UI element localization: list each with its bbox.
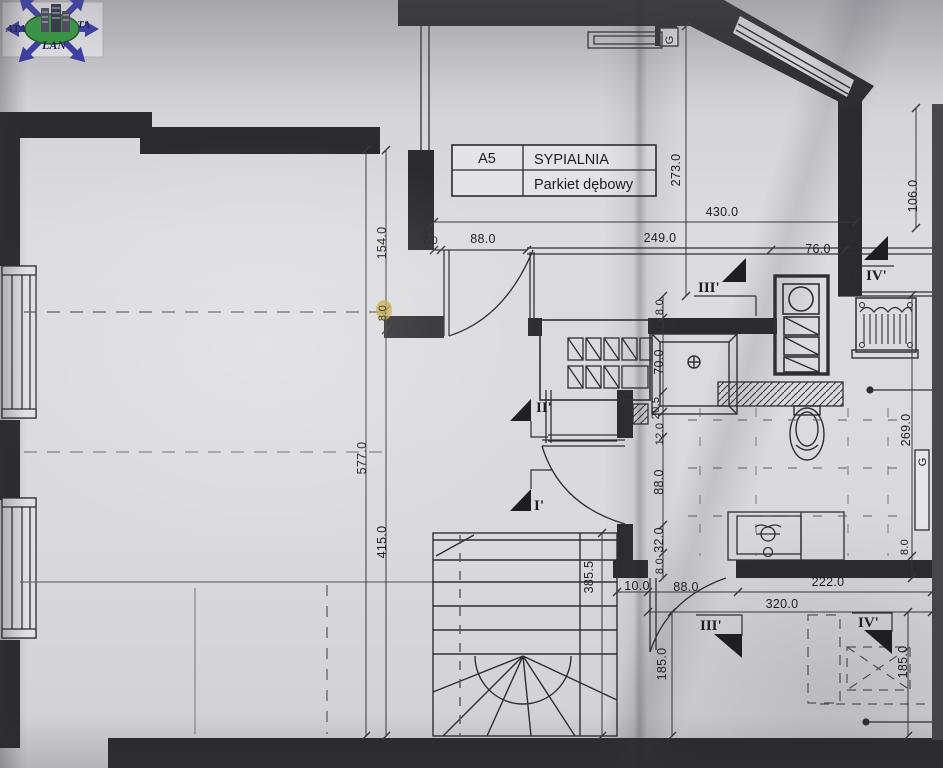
section-marker-I: I' xyxy=(510,470,552,514)
dim-10: 10.0 xyxy=(624,579,650,593)
dim-577: 577.0 xyxy=(355,442,369,475)
dim-88-bottom: 88.0 xyxy=(673,580,699,594)
dim-8-bathwall: 8.0 xyxy=(654,558,666,574)
dim-185-left: 185.0 xyxy=(655,648,669,681)
dim-269: 269.0 xyxy=(899,414,913,447)
dim-385-5: 385.5 xyxy=(582,561,596,594)
dim-88-top: 88.0 xyxy=(470,232,496,246)
section-label-III-bottom: III' xyxy=(700,618,722,634)
toilet xyxy=(790,406,824,460)
floor-plan-photo: A5 SYPIALNIA Parkiet dębowy 430.0 7.0 88… xyxy=(0,0,943,768)
dim-7: 7.0 xyxy=(422,235,438,247)
section-label-III-top: III' xyxy=(698,280,720,296)
logo-text-bottom: LAN xyxy=(41,38,67,52)
section-label-II: II' xyxy=(536,400,552,416)
window-left-lower xyxy=(2,498,36,638)
dim-185-right: 185.0 xyxy=(896,646,910,679)
wardrobe xyxy=(540,320,652,400)
section-label-I: I' xyxy=(534,498,544,514)
section-markers: II' I' III' IV' III' xyxy=(510,236,894,658)
dim-20-5: 20.5 xyxy=(650,397,662,420)
dim-273: 273.0 xyxy=(669,154,683,187)
radiator xyxy=(852,298,918,358)
dim-32: 32.0 xyxy=(652,527,666,553)
dim-total-width: 430.0 xyxy=(706,205,739,219)
logo-text-left: ATA xyxy=(5,23,26,35)
door-bathroom xyxy=(542,440,625,524)
room-name: SYPIALNIA xyxy=(534,152,609,168)
duct-label-right: G xyxy=(917,458,929,467)
room-label-box: A5 SYPIALNIA Parkiet dębowy xyxy=(452,145,656,196)
dim-12: 12.0 xyxy=(654,423,666,446)
dim-222: 222.0 xyxy=(812,575,845,589)
section-marker-III-top: III' xyxy=(694,258,756,316)
section-label-IV-top: IV' xyxy=(866,268,887,284)
section-marker-IV-bottom: IV' xyxy=(852,613,892,654)
dim-154: 154.0 xyxy=(375,227,389,260)
washbasin xyxy=(728,512,844,560)
dim-8-left: 8.0 xyxy=(377,305,389,321)
dim-8-right: 8.0 xyxy=(899,539,911,555)
window-left-upper xyxy=(2,266,36,418)
room-code: A5 xyxy=(478,151,496,167)
agency-logo: ATA TA LAN xyxy=(2,0,103,68)
duct-label-top: G xyxy=(664,36,676,45)
dim-70: 70.0 xyxy=(652,349,666,375)
dim-249: 249.0 xyxy=(644,231,677,245)
dim-88-bathdoor: 88.0 xyxy=(652,469,666,495)
dim-106: 106.0 xyxy=(906,180,920,213)
section-marker-III-bottom: III' xyxy=(696,615,742,658)
dim-320: 320.0 xyxy=(766,597,799,611)
floor-plan-drawing: A5 SYPIALNIA Parkiet dębowy 430.0 7.0 88… xyxy=(0,0,943,768)
door-bedroom xyxy=(444,250,533,336)
dim-415: 415.0 xyxy=(375,526,389,559)
dim-76: 76.0 xyxy=(805,242,831,256)
room-floor-finish: Parkiet dębowy xyxy=(534,177,634,193)
section-label-IV-bottom: IV' xyxy=(858,615,879,631)
dim-8-bathtop: 8.0 xyxy=(654,299,666,315)
logo-text-right: TA xyxy=(77,19,90,31)
